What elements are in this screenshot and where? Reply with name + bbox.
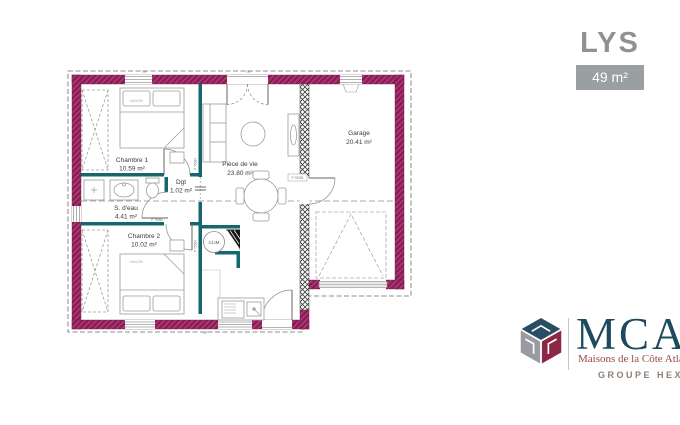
window-chambre2	[125, 320, 155, 329]
garage-access-door: P 75084	[288, 174, 335, 204]
kitchen-sink	[222, 301, 244, 318]
bed-size-label: 140x190	[129, 99, 143, 103]
svg-text:VR: VR	[142, 70, 147, 74]
svg-text:P 75084: P 75084	[194, 158, 198, 170]
room-label-chambre1: Chambre 1	[116, 157, 149, 164]
garage-parking	[316, 212, 386, 278]
coffee-table	[241, 122, 265, 146]
svg-text:10.59 m²: 10.59 m²	[119, 166, 145, 173]
toilet	[146, 178, 159, 183]
svg-text:P 75084: P 75084	[194, 240, 198, 252]
svg-text:23.80 m²: 23.80 m²	[227, 170, 253, 177]
room-label-piece: Pièce de vie	[222, 161, 258, 168]
fixtures-sdeau	[84, 178, 159, 200]
window-garage	[340, 75, 362, 92]
floor-plan: P 75084	[60, 62, 416, 338]
entry-door	[262, 290, 292, 329]
page-title: LYS	[556, 28, 664, 58]
dining-table	[244, 179, 278, 213]
french-door-piece	[227, 75, 268, 105]
brand-group: GROUPE Hexa	[598, 370, 680, 380]
brand-tagline: Maisons de la Côte Atlantique	[578, 353, 680, 365]
openings: P 75084	[72, 75, 387, 329]
brand-logo: MCA Maisons de la Côte Atlantique GROUPE…	[516, 312, 680, 392]
svg-text:4.41 m²: 4.41 m²	[115, 214, 138, 221]
svg-text:VR: VR	[203, 331, 208, 335]
room-label-sdeau: S. d'eau	[114, 205, 138, 212]
logo-divider	[568, 318, 569, 370]
clim-label: CLIM	[209, 240, 220, 245]
svg-text:P 75084: P 75084	[151, 218, 163, 222]
window-chambre1	[125, 75, 152, 84]
sofa	[203, 104, 226, 162]
svg-text:140x190: 140x190	[129, 260, 143, 264]
room-label-garage: Garage	[348, 130, 370, 137]
room-label-dgt: Dgt	[176, 179, 186, 186]
door-ref-label: P 75084	[292, 176, 304, 180]
room-label-chambre2: Chambre 2	[128, 233, 161, 240]
window-sdeau	[72, 206, 81, 222]
area-badge: 49 m²	[576, 65, 644, 90]
svg-text:20.41 m²: 20.41 m²	[346, 139, 372, 146]
svg-text:VR: VR	[246, 70, 251, 74]
svg-text:1.02 m²: 1.02 m²	[170, 188, 193, 195]
open-passage-marks	[195, 177, 206, 202]
title-block: LYS 49 m²	[556, 28, 664, 90]
window-kitchen	[218, 320, 252, 329]
clim-unit: CLIM	[204, 230, 241, 253]
garage-door	[319, 280, 387, 289]
hexagon-cube-icon	[518, 315, 564, 367]
kitchen	[202, 270, 264, 320]
page-canvas: LYS 49 m²	[0, 0, 680, 425]
svg-text:10.02 m²: 10.02 m²	[131, 242, 157, 249]
